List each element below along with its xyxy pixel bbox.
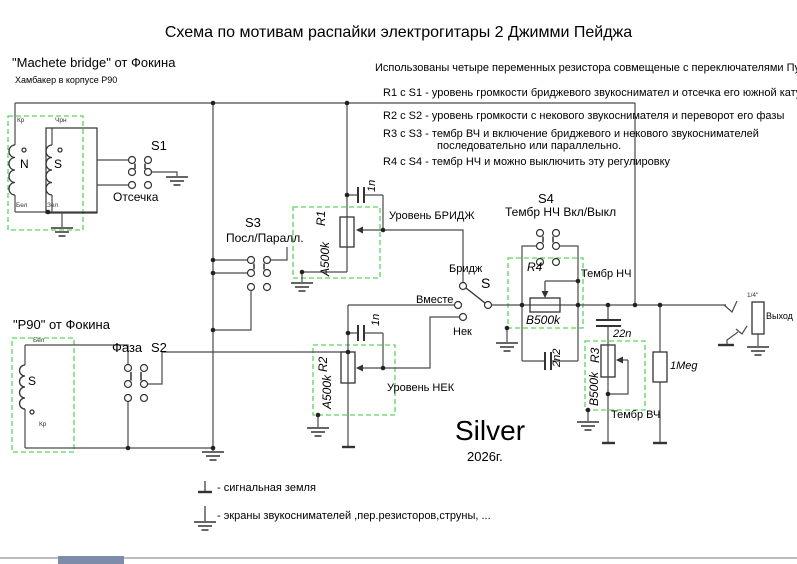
page-title: Схема по мотивам распайки электрогитары … bbox=[0, 24, 797, 42]
bridge-level-label: Уровень БРИДЖ bbox=[389, 210, 475, 222]
r4-cap-value: 2n2 bbox=[551, 349, 563, 367]
selector-both-label: Вместе bbox=[416, 294, 453, 306]
r3-value: B500k bbox=[588, 372, 601, 406]
s3-name: S3 bbox=[245, 216, 261, 230]
switch-s3 bbox=[248, 257, 271, 291]
window-bottom-artifact bbox=[58, 556, 124, 564]
wire-label-white-neck: Бел bbox=[33, 337, 44, 344]
note-r2: R2 с S2 - уровень громкости с некового з… bbox=[383, 110, 784, 122]
bridge-pickup-title: "Machete bridge" от Фокина bbox=[12, 56, 175, 70]
wire-label-green: Зел bbox=[47, 202, 58, 209]
r2-name: R2 bbox=[317, 357, 330, 372]
schematic-drawing bbox=[0, 0, 797, 564]
cap-22n bbox=[596, 320, 621, 326]
note-r3-line2: последовательно или параллельно. bbox=[437, 140, 621, 152]
r4-name: R4 bbox=[527, 261, 542, 274]
load-resistor-value: 1Meg bbox=[670, 360, 698, 372]
pot-r2 bbox=[341, 352, 363, 383]
r1-box bbox=[293, 207, 380, 278]
wiper-arrow bbox=[542, 291, 549, 298]
neck-coil-label: S bbox=[28, 375, 36, 388]
output-label: Выход bbox=[766, 312, 793, 322]
switch-s1 bbox=[129, 157, 152, 189]
wiper-arrow bbox=[356, 365, 363, 372]
note-r4: R4 с S4 - тембр НЧ и можно выключить эту… bbox=[383, 156, 670, 168]
neck-pickup-title: "P90" от Фокина bbox=[13, 318, 110, 332]
signature-year: 2026г. bbox=[467, 450, 503, 464]
author-signature: Silver bbox=[455, 416, 525, 447]
r2-cap-value: 1n bbox=[370, 314, 382, 326]
switch-s2 bbox=[125, 365, 148, 402]
junction-dots bbox=[46, 101, 663, 451]
neck-level-label: Уровень НЕК bbox=[387, 382, 454, 394]
cap-1n-neck bbox=[358, 325, 364, 341]
neck-coil bbox=[20, 365, 26, 409]
s2-label: Фаза bbox=[112, 341, 142, 355]
jack-body bbox=[752, 302, 764, 334]
wire-label-red: Кр bbox=[17, 117, 24, 124]
bass-tone-label: Тембр НЧ bbox=[581, 268, 631, 280]
s1-label: Отсечка bbox=[113, 191, 158, 204]
r1-value: A500k bbox=[319, 242, 332, 276]
r1-name: R1 bbox=[315, 211, 328, 226]
output-jack bbox=[752, 302, 764, 334]
coil-start-dot bbox=[58, 148, 62, 152]
legend-signal-ground: - сигнальная земля bbox=[217, 482, 316, 494]
note-r1: R1 с S1 - уровень громкости бриджевого з… bbox=[383, 87, 797, 99]
s4-label: Тембр НЧ Вкл/Выкл bbox=[505, 206, 616, 219]
r3-name: R3 bbox=[589, 348, 602, 363]
wire-label-black: Чрн bbox=[55, 117, 67, 124]
wire-label-red-neck: Кр bbox=[39, 421, 46, 428]
treble-tone-label: Тембр ВЧ bbox=[611, 409, 660, 421]
s3-label: Посл/Паралл. bbox=[226, 232, 304, 245]
selector-neck-label: Нек bbox=[453, 326, 472, 338]
wiper-arrow bbox=[356, 227, 363, 234]
r4-value: B500k bbox=[526, 314, 560, 327]
s1-name: S1 bbox=[151, 139, 167, 153]
coil-start-dot bbox=[22, 148, 26, 152]
resistor-1meg bbox=[653, 352, 667, 382]
note-intro: Использованы четыре переменных резистора… bbox=[375, 62, 797, 74]
pot-r4 bbox=[530, 281, 560, 312]
s2-name: S2 bbox=[151, 341, 167, 355]
coil-s-label: S bbox=[54, 158, 62, 171]
selector-name: S bbox=[481, 276, 490, 291]
potentiometers bbox=[340, 217, 667, 383]
coil-n-label: N bbox=[20, 158, 29, 171]
neck-pickup-box bbox=[12, 338, 74, 452]
wire-label-white: Бел bbox=[16, 202, 27, 209]
wiper-arrow bbox=[616, 357, 623, 364]
cap-1n-bridge bbox=[358, 187, 364, 203]
pot-r1 bbox=[340, 217, 363, 247]
schematic-page: Схема по мотивам распайки электрогитары … bbox=[0, 0, 797, 564]
selector-bridge-label: Бридж bbox=[449, 263, 482, 275]
legend-shield-ground: - экраны звукоснимателей ,пер.резисторов… bbox=[217, 510, 491, 522]
bridge-coil-s bbox=[46, 145, 52, 195]
r2-value: A500k bbox=[321, 375, 334, 409]
note-r3-line1: R3 с S3 - тембр ВЧ и включение бриджевог… bbox=[383, 128, 759, 140]
coil-start-dot bbox=[30, 410, 34, 414]
jack-size-label: 1/4" bbox=[747, 292, 758, 299]
bridge-coil-n bbox=[9, 145, 15, 195]
bridge-pickup-subtitle: Хамбакер в корпусе P90 bbox=[15, 76, 117, 86]
r1-cap-value: 1n bbox=[366, 180, 378, 192]
pot-r3 bbox=[601, 345, 623, 377]
r3-cap-value: 22n bbox=[613, 328, 631, 340]
